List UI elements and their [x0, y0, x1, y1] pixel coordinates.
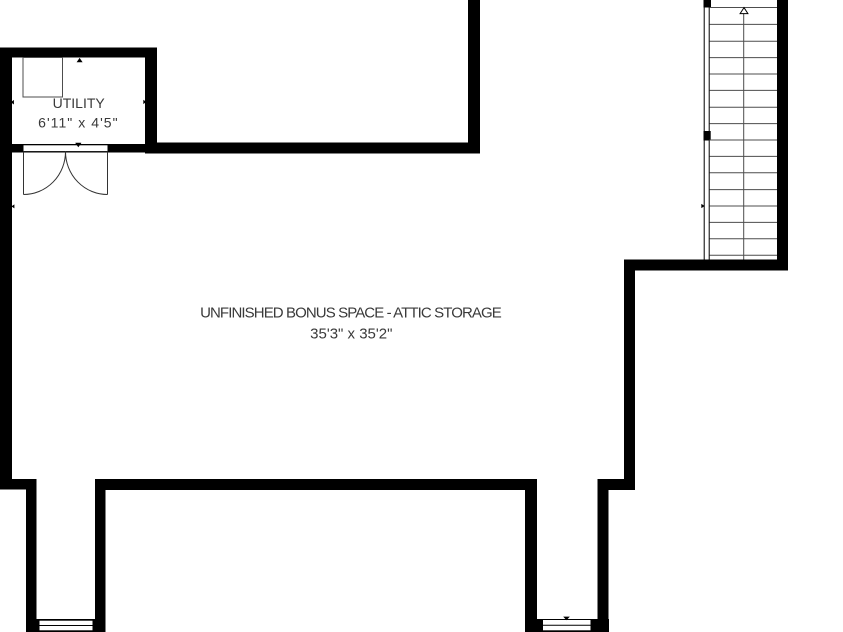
svg-text:35'3" x 35'2": 35'3" x 35'2" [310, 325, 392, 342]
svg-text:UTILITY: UTILITY [53, 95, 106, 111]
svg-text:6'11" x 4'5": 6'11" x 4'5" [38, 115, 119, 131]
svg-text:UNFINISHED BONUS SPACE - ATTIC: UNFINISHED BONUS SPACE - ATTIC STORAGE [200, 304, 502, 321]
